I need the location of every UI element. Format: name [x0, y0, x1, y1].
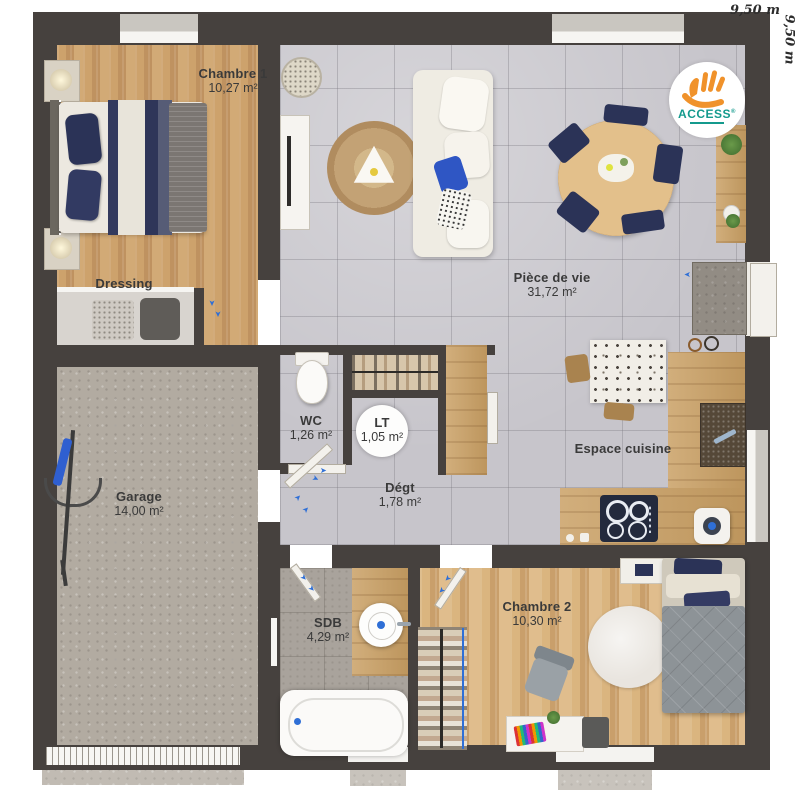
sofa-cushion [438, 75, 491, 133]
entry-door-leaf [750, 263, 777, 337]
room-area: 10,30 m² [477, 614, 597, 629]
room-area: 1,26 m² [271, 428, 351, 443]
logo-tagline-bar [690, 122, 724, 124]
room-name: Espace cuisine [553, 441, 693, 456]
room-name: Chambre 2 [477, 599, 597, 614]
tv [287, 136, 291, 206]
room-area: 4,29 m² [278, 630, 378, 645]
wall-right [745, 12, 770, 770]
burner [607, 522, 624, 539]
kitchen-jar [688, 338, 702, 352]
pillow [65, 169, 102, 222]
bar-stool [603, 402, 634, 422]
sofa [413, 70, 493, 257]
logo-brand-text: ACCESS® [669, 107, 745, 121]
room-name: LT [342, 415, 422, 430]
room-area: 14,00 m² [79, 504, 199, 519]
book [635, 564, 653, 576]
round-rug [327, 121, 421, 215]
bar-stool [564, 354, 591, 384]
wardrobe-chambre2 [418, 627, 467, 750]
room-label-degt: Dégt 1,78 m² [350, 480, 450, 510]
hall-cabinet [446, 345, 487, 475]
folded-clothes [92, 300, 134, 340]
burner [628, 521, 647, 540]
room-name: Dégt [350, 480, 450, 495]
bed-chambre2 [662, 558, 745, 713]
bed-throw [169, 103, 207, 232]
lamp [50, 237, 72, 259]
hand-icon [677, 68, 737, 108]
room-label-espace-cuisine: Espace cuisine [553, 441, 693, 456]
kitchen-sink [700, 403, 746, 467]
appliance-dot [708, 522, 716, 530]
door-swing-arrow-icon: ➤ [684, 270, 691, 278]
flower-bouquet [598, 154, 634, 182]
room-name: Dressing [74, 276, 174, 291]
floor-garage [57, 367, 258, 745]
door-swing-arrow-icon: ➤ [207, 300, 215, 307]
tv-console [280, 115, 310, 230]
dimension-height-label: 9,50 m [782, 15, 797, 65]
towel-rail [271, 618, 277, 666]
door-swing-arrow-icon: ➤ [320, 467, 327, 475]
wall-closet-lt [347, 390, 443, 398]
room-area: 10,27 m² [173, 81, 293, 96]
closet-rod [352, 371, 438, 373]
desk-plant [547, 711, 560, 724]
flower [620, 158, 628, 166]
dining-chair [652, 143, 683, 184]
door-swing-arrow-icon: ➤ [213, 311, 221, 318]
storage-bag [140, 298, 180, 340]
hall-door-leaf [487, 392, 498, 444]
room-label-sdb: SDB 4,29 m² [278, 615, 378, 645]
bed-chambre1 [59, 102, 205, 233]
wall-wc-lt [343, 353, 352, 465]
plant [726, 214, 740, 228]
wall-degt-sdb-a [280, 545, 290, 568]
round-rug-chambre2 [588, 606, 670, 688]
room-label-wc: WC 1,26 m² [271, 413, 351, 443]
desk-storage [582, 717, 609, 748]
dimension-width-label: 9,50 m [730, 3, 780, 18]
bathtub-faucet [294, 718, 301, 725]
room-name: Garage [79, 489, 199, 504]
flower [370, 168, 378, 176]
wall-dressing-stub [194, 288, 204, 345]
tray [352, 144, 396, 188]
wardrobe-rod [440, 629, 443, 748]
doormat [692, 262, 747, 335]
room-name: Chambre 1 [173, 66, 293, 81]
faucet [713, 429, 737, 445]
floor-plan: 9,50 m 9,50 m [0, 0, 800, 800]
bathtub [280, 690, 408, 756]
access-logo: ACCESS® [669, 62, 745, 138]
wardrobe-frame [462, 628, 464, 749]
window-dining [552, 14, 684, 43]
logo-brand: ACCESS [678, 107, 731, 121]
shoe-closet [352, 355, 438, 390]
room-area: 1,78 m² [350, 495, 450, 510]
room-label-piece-de-vie: Pièce de vie 31,72 m² [492, 270, 612, 300]
counter-item [580, 533, 589, 542]
room-name: WC [271, 413, 351, 428]
desk [506, 716, 584, 752]
flower [606, 164, 613, 171]
room-name: Pièce de vie [492, 270, 612, 285]
room-area: 1,05 m² [342, 430, 422, 445]
kitchen-jar [704, 336, 719, 351]
room-label-chambre1: Chambre 1 10,27 m² [173, 66, 293, 96]
wall-dressing-garage [33, 345, 280, 367]
room-area: 31,72 m² [492, 285, 612, 300]
room-label-chambre2: Chambre 2 10,30 m² [477, 599, 597, 629]
wall-degt-sdb-b [332, 545, 440, 568]
pillow [64, 112, 102, 165]
duvet [108, 100, 172, 235]
room-label-garage: Garage 14,00 m² [79, 489, 199, 519]
lamp [50, 69, 72, 91]
bathtub-basin [288, 698, 404, 752]
logo-registered-mark: ® [731, 109, 736, 115]
sink-drain [377, 621, 385, 629]
counter-item [566, 534, 574, 542]
nightstand [44, 60, 80, 102]
kitchen-island [590, 340, 666, 403]
garage-door [46, 747, 240, 765]
faucet [397, 622, 411, 626]
burner [629, 501, 649, 521]
duvet [662, 606, 745, 713]
small-appliance [694, 508, 730, 544]
cooktop-controls [648, 505, 652, 533]
room-name: SDB [278, 615, 378, 630]
toilet [296, 360, 328, 404]
plant [721, 134, 742, 155]
room-label-lt: LT 1,05 m² [342, 415, 422, 445]
cooktop [600, 495, 658, 542]
books [513, 722, 546, 747]
wall-lt-cabinet [438, 345, 446, 475]
burner [606, 500, 629, 523]
room-label-dressing: Dressing [74, 276, 174, 291]
window-chambre1 [120, 14, 198, 43]
window-kitchen [747, 430, 768, 542]
